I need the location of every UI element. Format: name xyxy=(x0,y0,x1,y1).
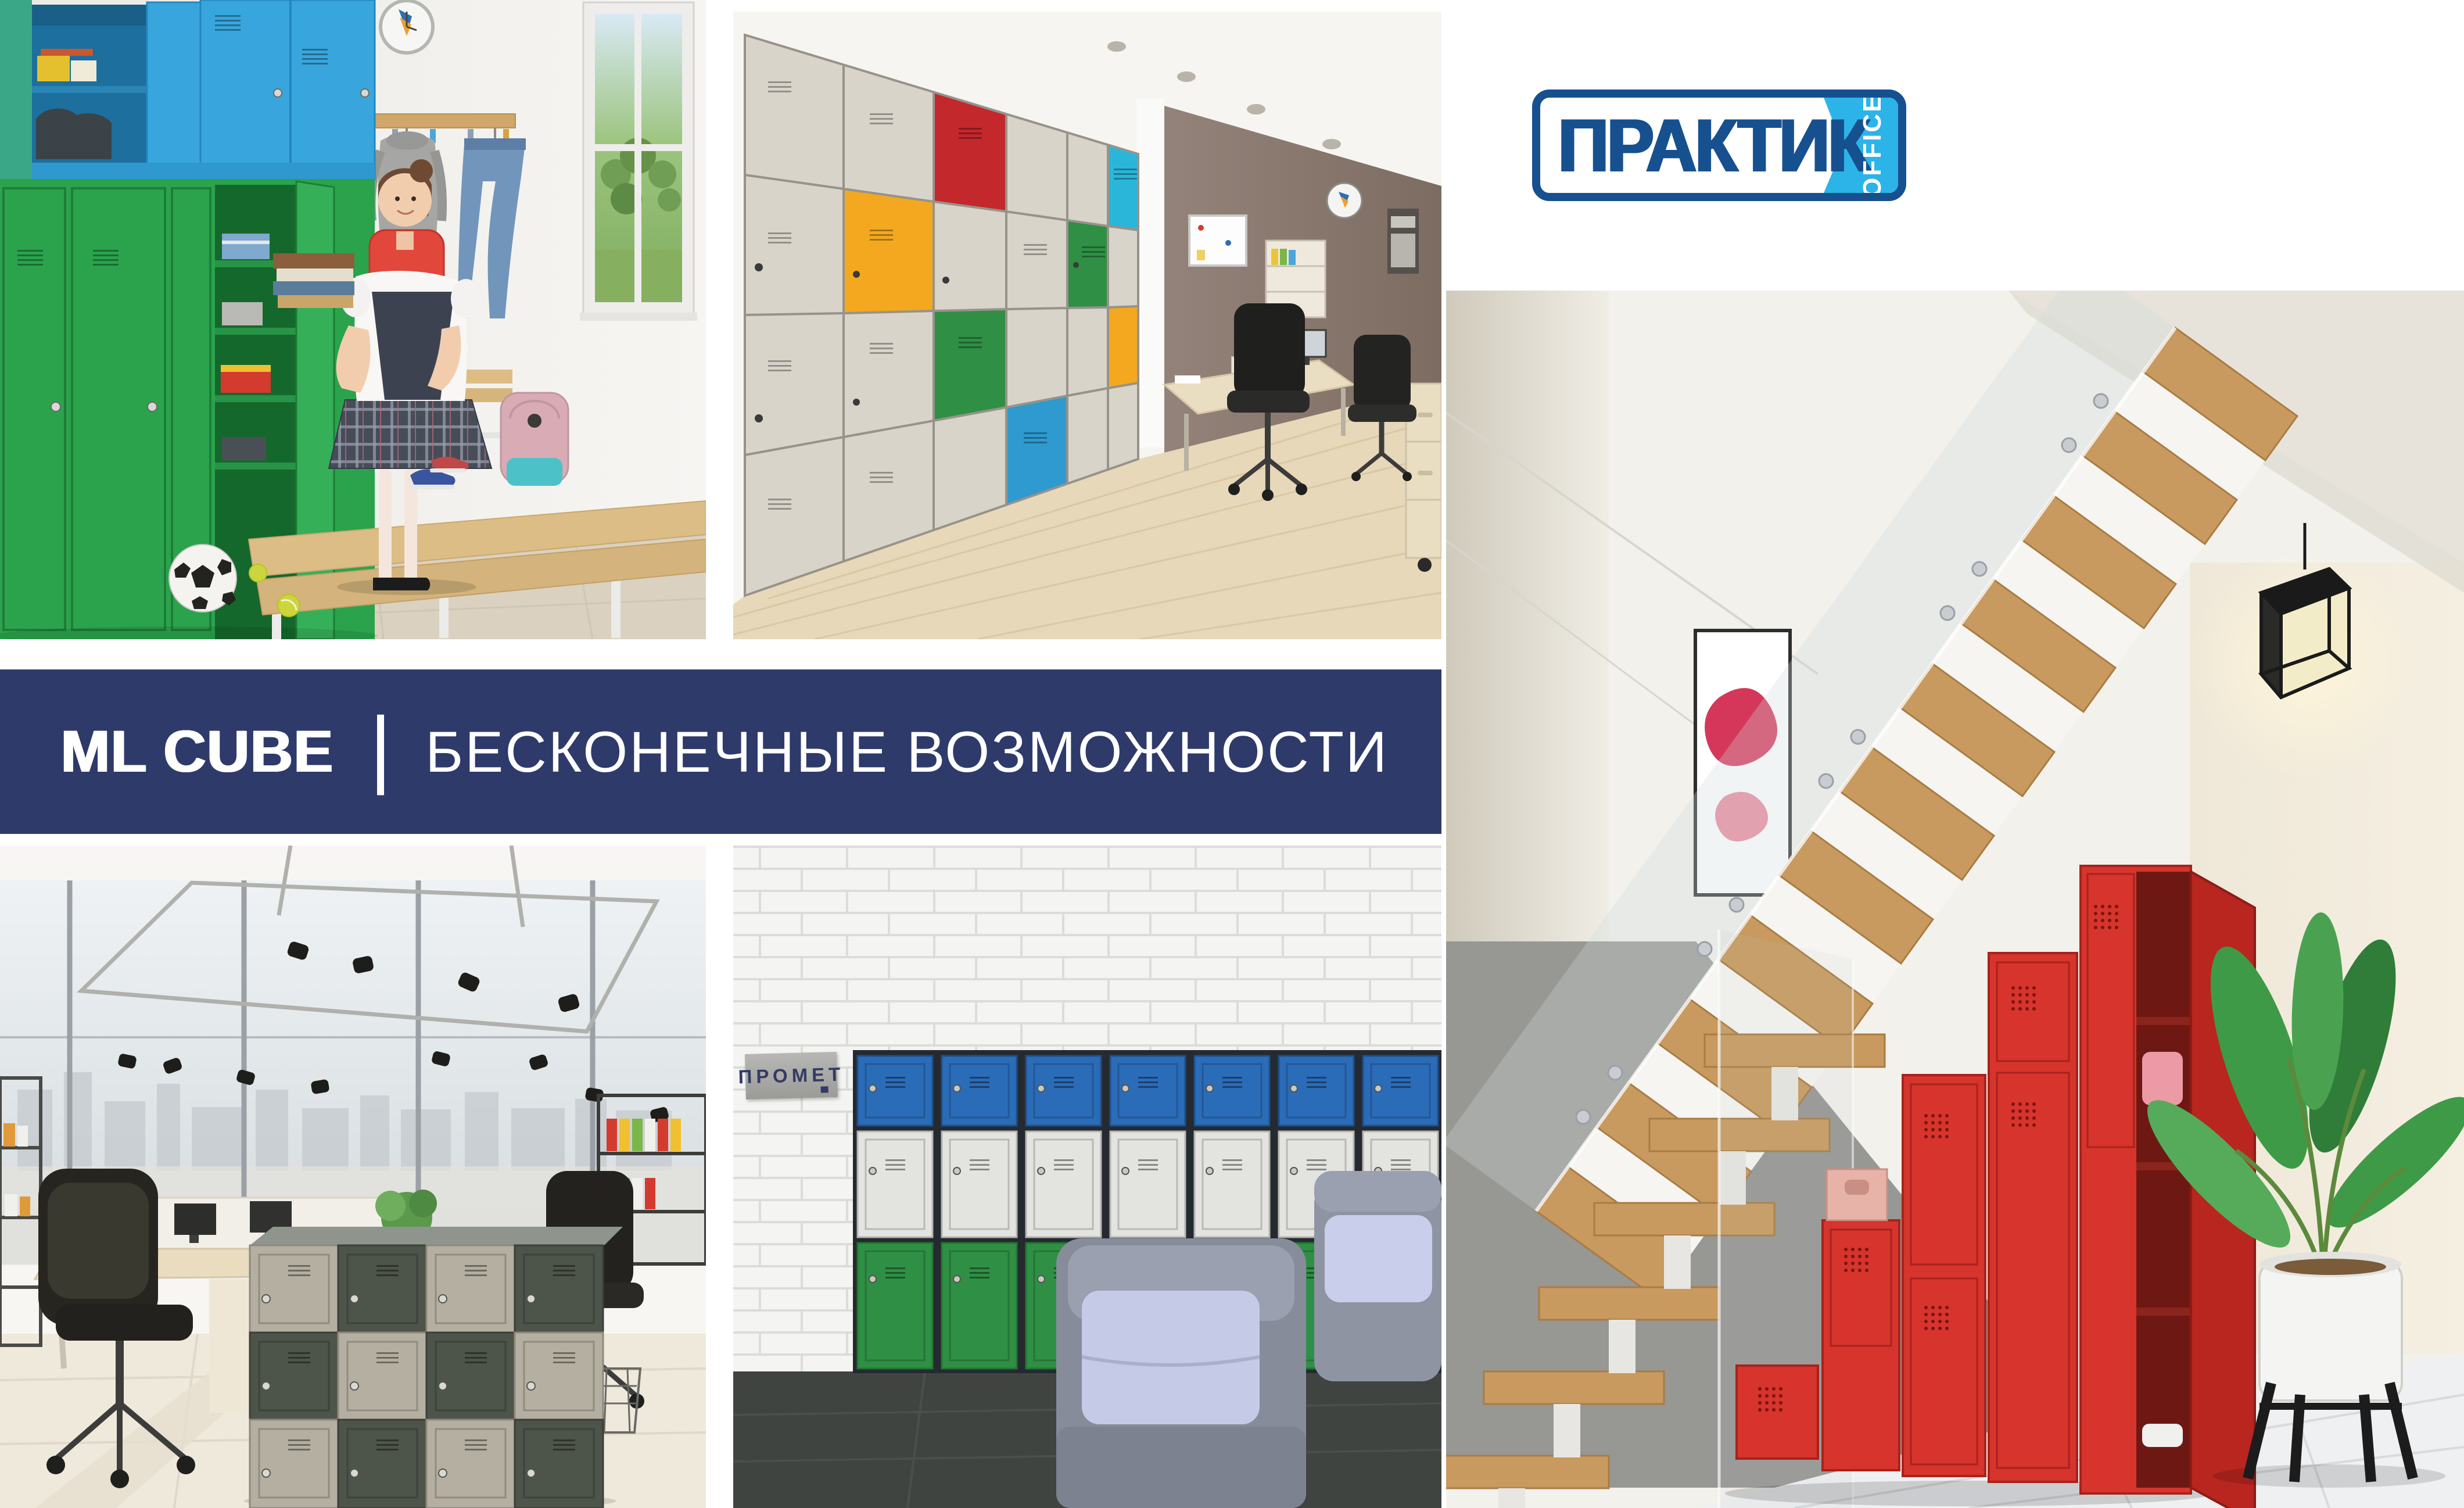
planter-pot xyxy=(2259,1261,2402,1400)
orange-door xyxy=(1108,306,1138,388)
brochure-page: ML CUBE | БЕСКОНЕЧНЫЕ ВОЗМОЖНОСТИ xyxy=(0,0,2464,1508)
promet-sign-text: ПРОМЕТ xyxy=(738,1063,845,1088)
lounge-sofa xyxy=(1314,1171,1441,1381)
praktik-office-logo: ПРАКТИК OFFICE xyxy=(1532,89,1906,201)
pink-bag xyxy=(2142,1052,2183,1105)
green-door xyxy=(934,309,1006,421)
teal-door xyxy=(1108,145,1138,230)
book-stack xyxy=(273,253,354,308)
photo-staircase-red-lockers xyxy=(1446,291,2464,1508)
window xyxy=(580,2,697,321)
photo-lounge-brick-wall-lockers xyxy=(733,846,1441,1508)
photo-office-colored-lockers xyxy=(733,12,1441,639)
promet-sign: ПРОМЕТ xyxy=(745,1052,838,1099)
locker-column xyxy=(1903,1075,1985,1476)
lounge-armchair xyxy=(1056,1238,1306,1508)
white-shoes xyxy=(2142,1424,2183,1447)
logo-brand-text: ПРАКТИК xyxy=(1558,98,1868,193)
whiteboard xyxy=(1189,216,1246,266)
promet-logo-mark xyxy=(821,1086,828,1093)
locker-column xyxy=(1989,953,2077,1482)
wall-clock xyxy=(1327,183,1362,218)
cube-locker-stack xyxy=(244,1227,623,1508)
product-banner: ML CUBE | БЕСКОНЕЧНЫЕ ВОЗМОЖНОСТИ xyxy=(0,669,1441,834)
soccer-ball xyxy=(169,545,236,612)
monitor xyxy=(174,1203,216,1235)
product-name: ML CUBE xyxy=(60,718,333,786)
banner-tagline: БЕСКОНЕЧНЫЕ ВОЗМОЖНОСТИ xyxy=(425,719,1389,785)
orange-door xyxy=(844,189,934,313)
wall-clock xyxy=(381,1,433,53)
pink-backpack xyxy=(501,393,568,486)
photo-kids-locker-room xyxy=(0,0,706,639)
logo-suffix-text: OFFICE xyxy=(1856,98,1889,193)
locker-cube xyxy=(1737,1366,1818,1459)
photo-office-workspace-lockers xyxy=(0,846,706,1508)
plaid-skirt xyxy=(329,400,492,468)
